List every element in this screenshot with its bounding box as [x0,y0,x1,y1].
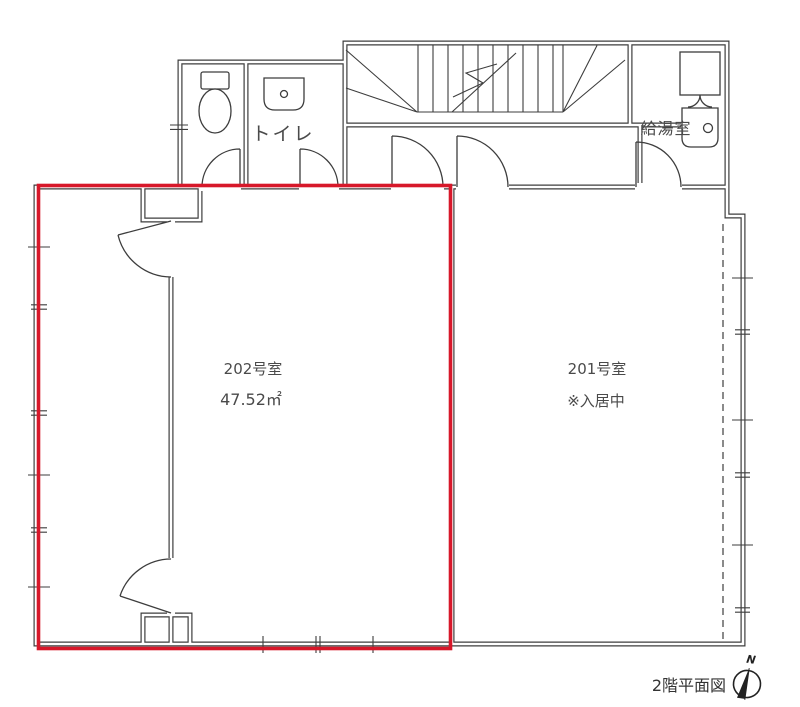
toilet-icon [199,72,231,133]
unit-201-door-opening [456,183,509,191]
unit-202-number: 202号室 [224,360,283,378]
sink-icon [264,78,304,110]
stairs [346,46,625,113]
kitchenette-label: 給湯室 [640,119,691,138]
unit-202-area: 47.52㎡ [220,390,282,409]
window-marks [28,125,753,653]
washroom-door [300,149,338,187]
strip-bottom-door-opening [167,558,175,614]
door-swings [118,95,712,613]
unit-202-door [392,136,443,187]
strip-bottom-door [120,559,171,613]
strip-top-door [118,221,171,277]
compass-icon: N [731,651,764,701]
walls [36,43,743,644]
unit-201-number: 201号室 [568,360,627,378]
floor-plan-canvas: トイレ 給湯室 202号室 47.52㎡ 201号室 ※入居中 2階平面図 N [0,0,800,707]
stair-break-mark [453,64,497,97]
compass-north-label: N [746,653,757,667]
toilet-door [202,149,240,187]
unit-201-door [457,136,508,187]
closet-icon [680,52,720,95]
strip-top-door-opening [167,221,175,277]
plan-title: 2階平面図 [652,676,726,695]
kitchenette-door [636,142,681,187]
unit-201-status: ※入居中 [567,392,625,410]
floor-plan-page: トイレ 給湯室 202号室 47.52㎡ 201号室 ※入居中 2階平面図 N [0,0,800,707]
closet-doors [688,95,712,107]
toilet-label: トイレ [251,123,314,145]
unit-202-highlight [39,186,451,649]
kitchenette-door-opening [635,183,682,191]
labels: トイレ 給湯室 202号室 47.52㎡ 201号室 ※入居中 2階平面図 [220,119,726,695]
stair-direction-line [452,53,516,112]
